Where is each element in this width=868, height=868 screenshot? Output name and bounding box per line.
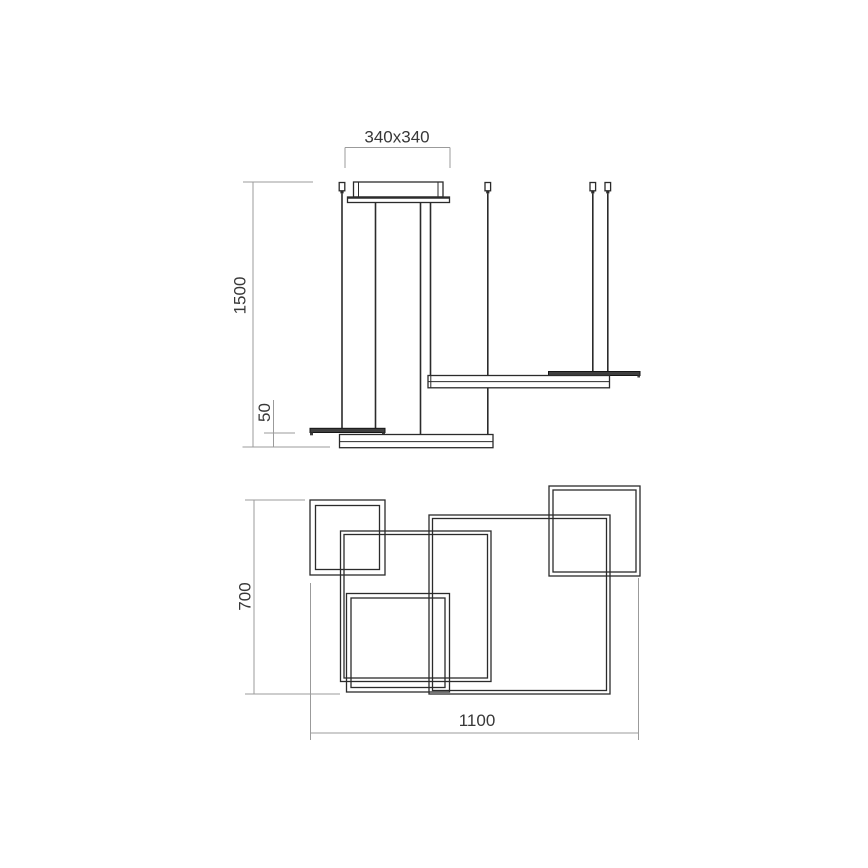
frame-inner (344, 535, 488, 679)
suspension-wires (342, 193, 608, 434)
upper-frame-profile (428, 376, 610, 388)
dim-canopy-340x340: 340x340 (345, 128, 450, 169)
frame-inner (553, 490, 636, 572)
fitting-body (590, 183, 596, 191)
square-frame-middle (341, 531, 492, 682)
fitting-nub (591, 191, 594, 194)
frame-outer (347, 594, 450, 693)
dim-label-depth: 700 (236, 582, 255, 610)
dim-width-1100: 1100 (310, 578, 639, 740)
elevation-view: 340x340 1500 50 (231, 128, 641, 448)
frame-bar-end-cap (637, 376, 640, 378)
technical-drawing: 340x340 1500 50 (0, 0, 868, 868)
square-frame-bottom-left (347, 594, 450, 693)
ceiling-fitting (339, 183, 345, 194)
fitting-body (605, 183, 611, 191)
square-frame-large (429, 515, 610, 694)
ceiling-fitting (605, 183, 611, 194)
ceiling-fitting (485, 183, 491, 194)
ceiling-fitting (590, 183, 596, 194)
frame-inner (433, 519, 607, 691)
dim-label-drop: 1500 (231, 277, 250, 315)
dim-label-canopy: 340x340 (364, 128, 429, 147)
frame-bar-end-cap (310, 433, 313, 436)
frame-outer (341, 531, 492, 682)
fitting-body (339, 183, 345, 191)
frame-bar (310, 428, 385, 432)
drawing-canvas: 340x340 1500 50 (0, 0, 868, 868)
lower-frame-profile (340, 435, 494, 448)
square-frame-top-right (549, 486, 640, 576)
square-frame-top-left (310, 500, 385, 575)
dim-profile-50: 50 (255, 400, 295, 447)
fitting-nub (486, 191, 489, 194)
ceiling-canopy (348, 182, 450, 203)
plan-view: 700 1100 (236, 486, 641, 740)
frame-outer (310, 500, 385, 575)
fitting-body (485, 183, 491, 191)
fitting-nub (340, 191, 343, 194)
frame-outer (429, 515, 610, 694)
dim-depth-700: 700 (236, 500, 341, 694)
frame-inner (316, 506, 380, 570)
dim-label-width: 1100 (459, 711, 496, 730)
canopy-box (354, 182, 444, 197)
frame-inner (351, 598, 445, 688)
dim-label-profile: 50 (255, 403, 274, 422)
frame-outer (549, 486, 640, 576)
dim-drop-1500: 1500 (231, 182, 331, 447)
fitting-nub (606, 191, 609, 194)
